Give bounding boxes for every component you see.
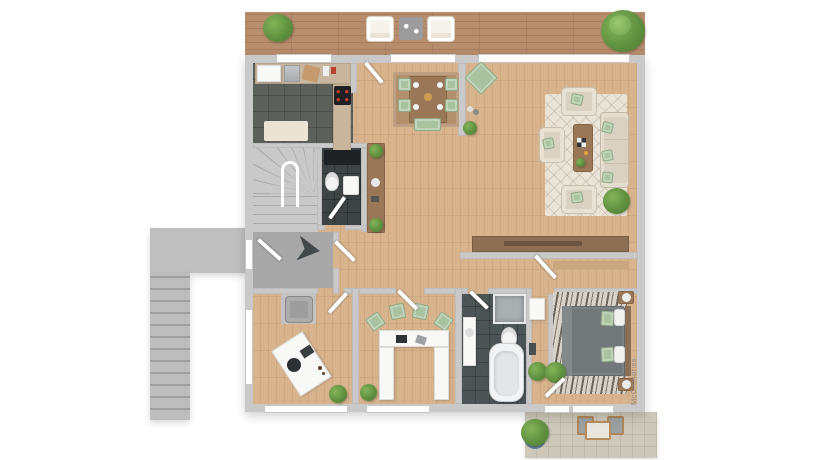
window-office-bottom [264, 405, 348, 413]
halfwall-tv [460, 252, 638, 259]
bathtub-inner [494, 351, 519, 396]
wall-bath-top-a [462, 288, 468, 294]
terrace-door-threshold [544, 405, 570, 413]
dining-bench [414, 118, 441, 131]
kitchen-jar-red [331, 67, 336, 74]
wall-wc-bottom-a [317, 225, 325, 230]
window-dining [390, 54, 456, 63]
front-door-opening [245, 239, 253, 270]
deck-lounger-left [366, 16, 394, 42]
midroom-laptop [396, 335, 407, 343]
kitchen-island [264, 121, 308, 141]
sideboard-plant-bottom [369, 218, 383, 232]
sofa-pillow-3 [601, 171, 613, 183]
deck-side-table [399, 17, 423, 40]
midroom-plant [360, 384, 377, 401]
deck-lounger-right [427, 16, 455, 42]
deck-tree-highlight [609, 15, 631, 35]
living-plant [603, 188, 630, 214]
office-deco-1 [318, 366, 322, 370]
coffee-table-board-game [577, 138, 586, 147]
bath-sink [465, 328, 474, 337]
wall-office-right [352, 288, 359, 404]
bed-pillow-white-1 [614, 309, 625, 326]
pet-bowl-2 [473, 109, 479, 115]
sideboard-bowl [371, 178, 380, 187]
dining-chair-bl [398, 99, 411, 112]
coffee-table-plant [576, 158, 585, 167]
window-midroom-bottom [366, 405, 430, 413]
watermark-text: McGrundriss [629, 345, 641, 405]
dining-plate-4 [437, 104, 443, 110]
sideboard-plant-top [369, 144, 383, 158]
floor-plan-image: McGrundriss [0, 0, 830, 460]
sideboard-deco [371, 196, 379, 202]
kitchen-cabinet [257, 65, 281, 82]
wc-washer [343, 176, 359, 195]
entry-floor [253, 232, 333, 288]
bed-pillow-white-2 [614, 346, 625, 363]
dining-plate-2 [437, 82, 443, 88]
armchair-top-pillow [570, 93, 584, 106]
dining-plate-1 [413, 82, 419, 88]
bed-pillow-green-1 [600, 311, 614, 327]
deck-plant-left [263, 14, 293, 42]
exterior-landing [150, 228, 248, 273]
wall-kitchen-dining [350, 63, 357, 93]
u-desk-left [379, 347, 394, 400]
u-desk-top [379, 330, 449, 347]
terrace-table [585, 421, 611, 440]
window-living [478, 54, 630, 63]
tv-inset [504, 241, 582, 246]
floor-plan-canvas [0, 0, 830, 460]
wall-midroom-top-b [424, 288, 455, 294]
u-desk-right [434, 347, 449, 400]
nightstand-top-lamp [622, 293, 631, 302]
dining-chair-br [445, 99, 458, 112]
coffee-table-candle [584, 151, 588, 155]
window-office-left [245, 309, 253, 385]
dining-chair-tr [445, 78, 458, 91]
wc-counter [324, 150, 360, 165]
bath-vanity [463, 317, 476, 366]
wall-stairs-wc [317, 148, 322, 225]
kitchen-jar-white [323, 66, 329, 76]
wall-midroom-top-a [359, 288, 396, 294]
exterior-stairs [150, 273, 190, 420]
office-armchair [285, 296, 313, 323]
wc-toilet [325, 172, 339, 191]
stair-direction-arch [281, 161, 299, 207]
armchair-bottom-pillow [570, 191, 583, 204]
office-plant [329, 385, 347, 403]
dining-center-bowl [424, 93, 432, 101]
hall-console [529, 298, 545, 320]
corridor-bench [553, 261, 628, 269]
window-bedroom-bottom [572, 405, 614, 413]
office-chair [287, 358, 301, 372]
hall-towel [529, 343, 536, 355]
armchair-left-pillow [542, 137, 555, 150]
kitchen-stove [334, 86, 351, 105]
wall-wc-bottom-b [345, 225, 367, 230]
dining-chair-tl [398, 78, 411, 91]
kitchen-sink [284, 65, 300, 82]
terrace-plant [521, 419, 549, 446]
plant-by-wall [463, 121, 477, 135]
wall-entry-right-b [333, 268, 339, 294]
sofa-pillow-2 [601, 149, 614, 162]
midroom-chair-2 [389, 303, 407, 321]
wall-midroom-right [455, 288, 462, 404]
window-kitchen [276, 54, 332, 63]
shower [493, 294, 526, 324]
office-deco-2 [322, 372, 325, 375]
dining-plate-3 [413, 104, 419, 110]
bed-pillow-green-2 [600, 347, 614, 363]
